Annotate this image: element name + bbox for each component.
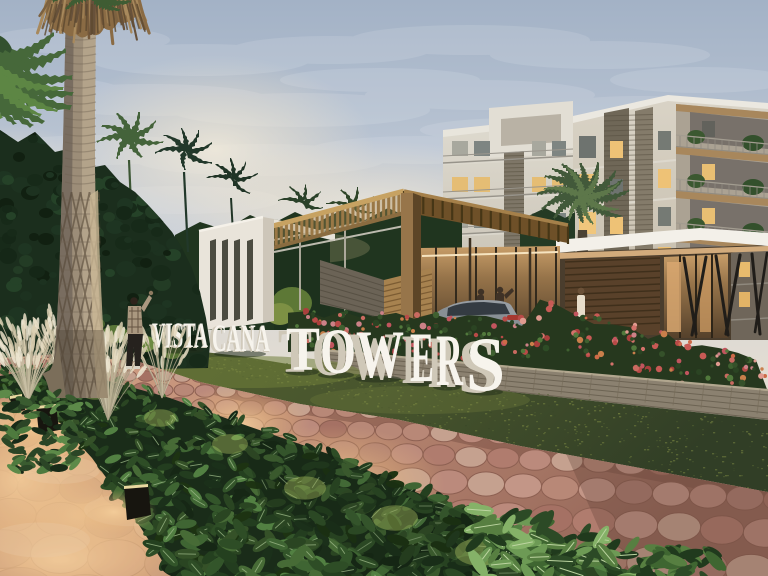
svg-text:CANA: CANA <box>212 317 270 360</box>
svg-text:VISTA: VISTA <box>152 315 208 355</box>
svg-text:S: S <box>466 321 505 407</box>
svg-text:O: O <box>320 316 356 388</box>
svg-text:E: E <box>410 319 434 397</box>
svg-text:T: T <box>286 316 320 384</box>
svg-text:R: R <box>436 320 464 402</box>
svg-text:W: W <box>356 316 404 392</box>
